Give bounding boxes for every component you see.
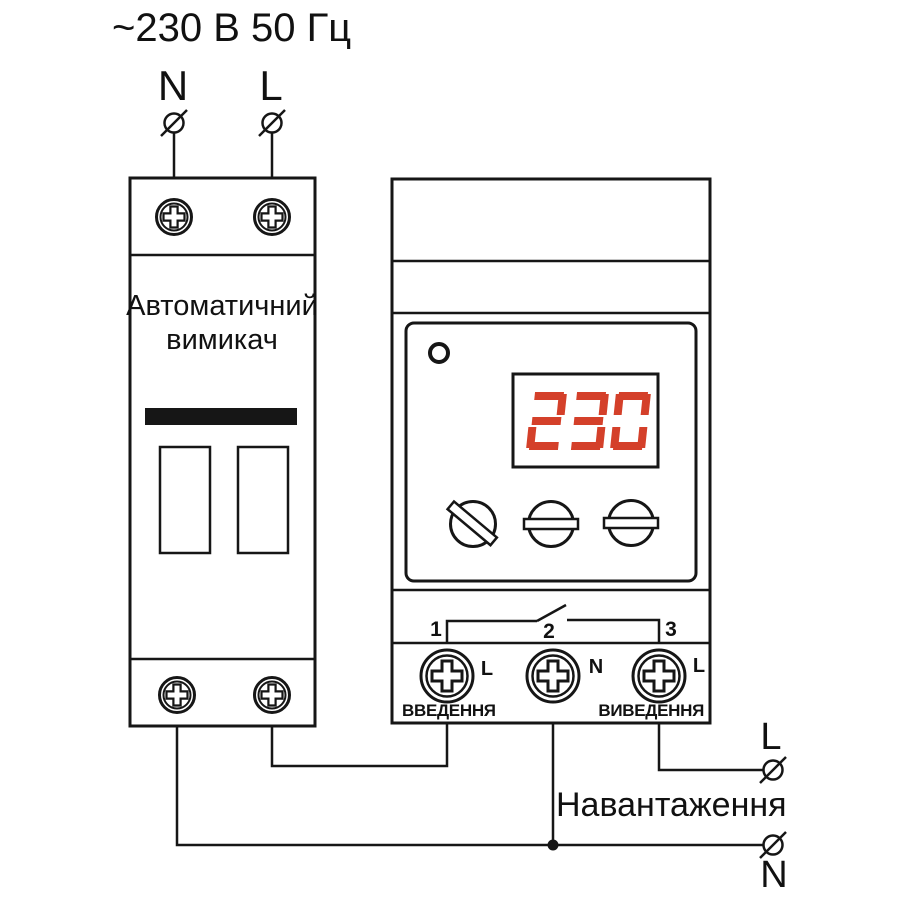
supply-line-label: L (259, 62, 282, 110)
breaker-toggle-right (238, 447, 288, 553)
relay-screw-terminal-1-icon (421, 650, 473, 702)
relay-terminal-3-wire-label: L (693, 655, 705, 678)
wire-relay-to-load (659, 718, 763, 770)
load-line-label: L (760, 716, 781, 759)
breaker-toggle-left (160, 447, 210, 553)
circuit-breaker (130, 178, 315, 726)
breaker-screw-bottom-left-icon (160, 678, 195, 713)
relay-terminal-2-wire-label: N (589, 656, 603, 679)
wiring-diagram: ~230 В 50 Гц N L Автоматичний вимикач 1 … (0, 0, 900, 900)
relay-terminal-1-number: 1 (430, 618, 442, 642)
relay-terminal-2-number: 2 (543, 620, 555, 644)
supply-title: ~230 В 50 Гц (112, 6, 351, 51)
led-indicator-icon (430, 344, 448, 362)
load-neutral-label: N (760, 854, 787, 897)
supply-neutral-label: N (158, 62, 188, 110)
relay-input-label: ВВЕДЕННЯ (402, 701, 496, 721)
junction-dot (548, 840, 559, 851)
seven-segment-display (526, 392, 651, 450)
load-line-terminal-icon (760, 757, 786, 783)
supply-line-terminal-icon (259, 110, 285, 136)
relay-terminal-1-wire-label: L (481, 658, 493, 681)
relay-screw-terminal-2-icon (527, 650, 579, 702)
display-digit (568, 392, 609, 450)
breaker-label: Автоматичний вимикач (126, 289, 318, 357)
relay-screw-terminal-3-icon (633, 650, 685, 702)
relay-output-label: ВИВЕДЕННЯ (598, 701, 704, 721)
display-digit (526, 392, 567, 450)
supply-neutral-terminal-icon (161, 110, 187, 136)
knob-2-slot-icon (524, 519, 578, 529)
relay-terminal-3-number: 3 (665, 618, 677, 642)
load-label: Навантаження (556, 786, 787, 825)
breaker-black-bar (145, 408, 297, 425)
breaker-label-line2: вимикач (126, 323, 318, 357)
knob-1 (448, 502, 497, 547)
diagram-line-art (0, 0, 900, 900)
breaker-screw-top-left-icon (157, 200, 192, 235)
breaker-label-line1: Автоматичний (126, 289, 318, 323)
breaker-screw-bottom-right-icon (255, 678, 290, 713)
knob-3-slot-icon (604, 518, 658, 528)
display-digit (610, 392, 651, 450)
breaker-screw-top-right-icon (255, 200, 290, 235)
